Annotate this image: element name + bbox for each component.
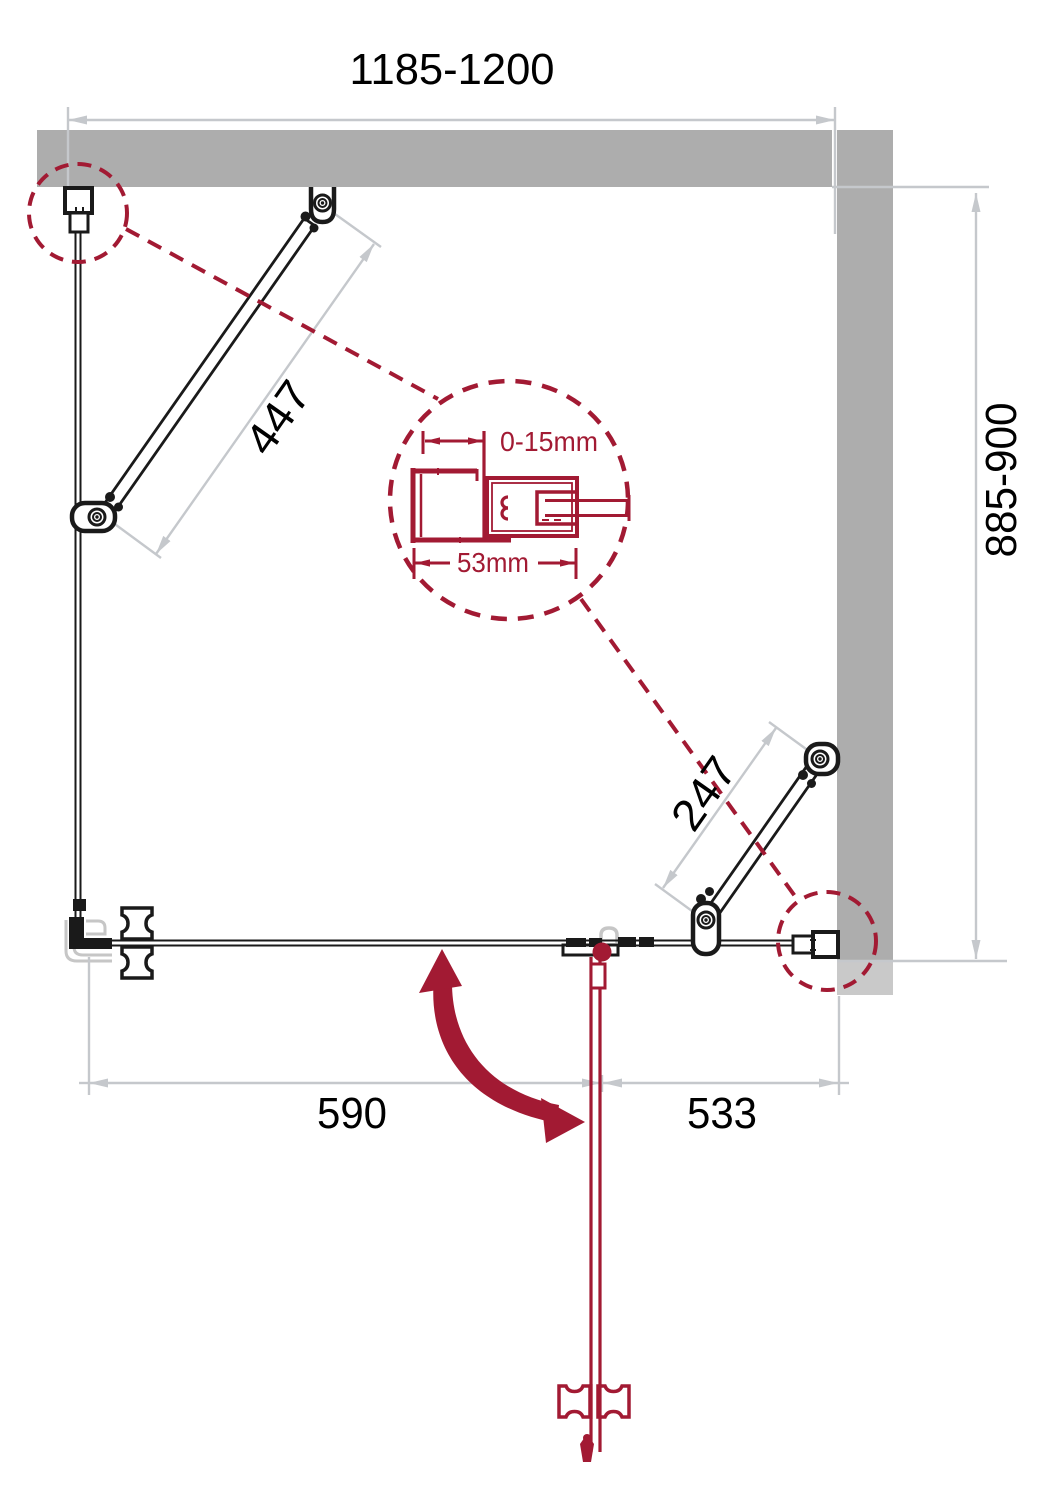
right-wall-extension (837, 961, 893, 995)
right-wall (837, 130, 893, 961)
dim-bottom-right-label: 533 (687, 1089, 757, 1138)
leader-line-2 (581, 599, 797, 899)
swing-arrow-shaft (433, 978, 559, 1123)
door-swing-arrow (419, 949, 585, 1143)
hinge-bottom-jaw1 (696, 894, 706, 904)
wall-profile-tl-outer (65, 188, 92, 213)
fold-panel-left (101, 218, 315, 515)
rail-stop-1 (566, 938, 586, 947)
top-wall (37, 130, 832, 187)
open-door-top-profile (591, 964, 605, 988)
detail-adjustment-label: 0-15mm (500, 426, 598, 457)
wall-profile-bottom-right (793, 932, 838, 957)
det-gasket-lower (502, 508, 508, 519)
dim-left-panel-label: 447 (236, 372, 321, 464)
rail-stop-4 (639, 937, 654, 947)
hinge-bottom-pivot-dot (704, 918, 707, 921)
corner-glass-clamp (73, 899, 86, 911)
wall-profile-br-outer (813, 932, 838, 957)
ext-447-bottom (108, 519, 161, 558)
det-gasket-upper (502, 497, 508, 508)
hinge-mid-left-jaw2 (114, 503, 123, 512)
hinge-mid-left-jaw1 (105, 492, 115, 502)
hinge-mid-left-pivot-dot (95, 515, 98, 518)
swing-arrow-head-bottom (541, 1098, 585, 1143)
det-glass-profile-outer (487, 478, 577, 536)
dim-right-depth-label: 885-900 (977, 403, 1026, 558)
door-open-ghost (559, 943, 629, 1463)
hinge-bottom-jaw2 (705, 887, 714, 896)
technical-diagram-canvas: 1185-1200 885-900 447 247 590 533 0-15mm… (0, 0, 1056, 1500)
hinge-top-jaw2 (310, 224, 319, 233)
hinge-top-pivot-dot (321, 201, 324, 204)
corner-assembly (69, 899, 152, 978)
dim-top-width-label: 1185-1200 (350, 45, 555, 94)
hinge-top-jaw1 (301, 212, 311, 222)
swing-arrow-head-top (419, 949, 462, 993)
ghost-corner-hook (86, 921, 105, 934)
rail-stop-3 (618, 937, 636, 947)
hinge-wall-right-jaw2 (807, 779, 816, 788)
wall-profile-tl-inner (70, 213, 88, 232)
dim-right-panel-label: 247 (662, 748, 747, 840)
fold-panel-left-assembly (72, 187, 334, 531)
glass-panels (76, 231, 794, 946)
open-door-knob-right (598, 1386, 629, 1417)
enclosure-plan-svg: 1185-1200 885-900 447 247 590 533 0-15mm… (0, 0, 1056, 1500)
ext-447-top (328, 209, 381, 247)
detail-profile-width-label: 53mm (457, 547, 529, 578)
open-door-knob-left (559, 1386, 590, 1417)
knob-lower (122, 947, 152, 978)
wall-profile-top-left (65, 188, 92, 232)
labels: 1185-1200 885-900 447 247 590 533 0-15mm… (236, 45, 1026, 1138)
door-pivot-dot (593, 943, 612, 962)
knob-upper (122, 908, 152, 939)
hinge-wall-right-jaw1 (798, 770, 808, 780)
hinge-wall-right-pivot-dot (818, 757, 821, 760)
dim-bottom-left-label: 590 (317, 1089, 387, 1138)
